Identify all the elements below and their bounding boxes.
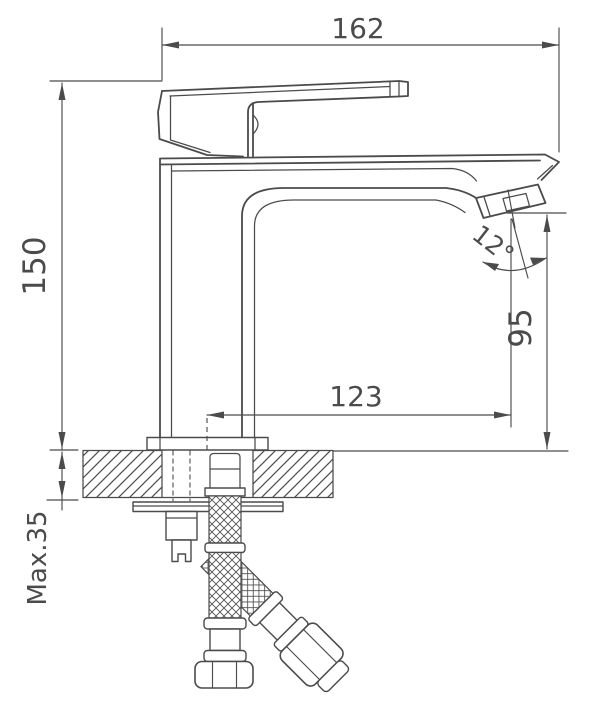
vertical-hose-collar-1 <box>204 618 246 629</box>
dimension-angle-12: 12° <box>467 219 546 278</box>
vertical-hose-band <box>205 543 245 553</box>
faucet-technical-drawing: 162 150 Max.35 123 95 <box>0 0 605 709</box>
dim-150-label: 150 <box>17 236 53 295</box>
dim-162-arrow-left <box>162 42 179 49</box>
deck-hatch-right <box>253 451 333 498</box>
hose-fitting-in-shank <box>210 454 240 489</box>
dim-162-arrow-right <box>542 42 559 49</box>
angle-arrow-right <box>530 258 546 266</box>
mounting-deck <box>83 451 333 502</box>
dimension-max35: Max.35 <box>23 450 78 606</box>
drawing-canvas: 162 150 Max.35 123 95 <box>0 0 605 709</box>
lever-outline <box>162 81 408 157</box>
dim-162-label: 162 <box>331 12 384 45</box>
dim-95-label: 95 <box>503 308 539 347</box>
spout-top-inner-edge <box>160 161 540 165</box>
threaded-shank <box>173 451 190 502</box>
mounting-washer-plate <box>133 502 283 512</box>
dim-max35-label: Max.35 <box>23 510 53 605</box>
dim-162-extension-lines <box>162 28 559 152</box>
dim-angle-label: 12° <box>467 219 520 269</box>
vertical-hose-braid-upper <box>209 496 241 543</box>
spout-under-plate-line <box>172 169 477 182</box>
aerator-band <box>484 197 490 216</box>
dim-123-arrow-right <box>494 412 511 419</box>
vertical-hose-collar-2 <box>204 651 246 662</box>
hose-fitting-flange <box>205 488 245 496</box>
dimension-150: 150 <box>17 81 162 449</box>
dim-123-label: 123 <box>329 380 382 413</box>
dim-95-arrow-top <box>544 215 551 232</box>
mounting-stud-nut <box>166 512 197 541</box>
dim-150-arrow-top <box>59 83 66 100</box>
vertical-hose-hex-nut <box>195 662 253 689</box>
dim-max35-arrow-top <box>59 452 66 469</box>
threaded-stud-end <box>172 540 191 562</box>
vertical-hose-braid-lower <box>209 553 241 619</box>
deck-hatch-left <box>83 451 162 498</box>
vertical-hose-tube <box>210 629 240 651</box>
dim-max35-arrow-bottom <box>59 481 66 498</box>
dim-123-arrow-left <box>207 412 224 419</box>
lever-top-inner-line <box>170 87 390 97</box>
spout-top-edge <box>160 155 559 181</box>
lever-tip-divisions <box>390 81 399 97</box>
dim-95-arrow-bottom <box>544 432 551 449</box>
handle-lever <box>158 81 408 157</box>
dim-150-arrow-bottom <box>59 432 66 449</box>
